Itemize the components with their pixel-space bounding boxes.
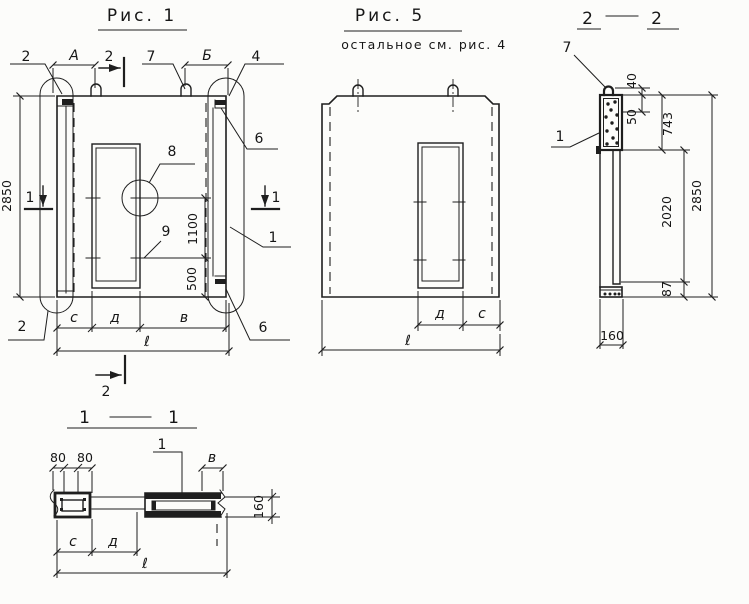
section-1-1: 1 1 1 80 80 в 160 [50,408,280,578]
mark-4: 4 [252,49,261,65]
mark-6-bottom: 6 [259,320,268,336]
mark-1-right: 1 [269,230,278,246]
figure-5-title: Рис. 5 [355,6,425,26]
dim-text-d: д [109,310,120,326]
mark-section-1-right: 1 [272,190,281,206]
jamb-embed-ticks [86,198,146,258]
leader-9 [144,241,161,258]
panel-outline [322,96,499,297]
dim-text-length: ℓ [404,333,411,349]
mark-8: 8 [168,144,177,160]
dim-text-1100: 1100 [185,213,200,245]
figure-1: Рис. 1 [0,6,291,400]
bottom-block-rebar-dots [604,293,621,296]
dim-text-c: с [69,534,77,550]
corner-lines-left [57,106,73,291]
bottom-block [600,287,622,297]
dim-text-v: в [180,310,188,326]
dim-text-87: 87 [659,281,674,297]
mark-7: 7 [147,49,156,65]
mark-section-2-top: 2 [105,49,114,65]
drawing-sheet: Рис. 1 [0,0,749,604]
door-opening-inner [422,147,459,281]
dim-text-80b: 80 [77,450,93,465]
mark-section-1-left: 1 [26,190,35,206]
extension-lines [322,291,500,356]
door-opening-inner [96,148,136,281]
mark-detail-2-bottom: 2 [18,319,27,335]
right-panel-top-band [145,493,221,499]
left-jamb-block [55,493,90,517]
section-1-1-title-a: 1 [79,408,93,428]
extension-lines [13,68,229,356]
opening-reveal-lines [90,497,145,509]
leader-1 [153,452,182,493]
mark-1: 1 [158,437,167,453]
figure-5: Рис. 5 остальное см. рис. 4 д с ℓ [322,6,507,356]
dim-text-d: д [107,534,118,550]
mark-7: 7 [563,40,572,56]
void-end-right [211,501,215,510]
panel-hidden-lines [330,107,492,294]
wall-section-lines [600,150,620,287]
mark-6-top: 6 [255,131,264,147]
dim-text-500: 500 [184,267,199,291]
leader-4 [229,64,284,96]
door-opening-outer [92,144,140,288]
panel-outline [57,96,226,297]
right-panel-bottom-band [145,511,221,517]
dim-text-50: 50 [624,109,639,125]
dim-text-743: 743 [660,112,675,136]
leader-7 [142,64,185,89]
dim-text-2020: 2020 [659,196,674,228]
leader-detail-2-bottom [8,311,48,340]
dim-text-2850: 2850 [689,180,704,212]
section-2-2: 2 2 7 1 4 [551,9,718,349]
top-block-rebar-dots [604,100,618,145]
section-2-2-title-b: 2 [651,9,665,29]
figure-5-subtitle: остальное см. рис. 4 [341,37,506,52]
lifting-loops [91,84,191,96]
dim-text-length: ℓ [141,556,148,572]
extension-lines [53,471,280,578]
leader-8 [149,164,195,183]
right-panel-void [152,501,215,510]
corner-step-top-left [62,99,73,105]
dim-text-length: ℓ [143,334,150,350]
dim-text-c: с [478,306,486,322]
technical-drawing: Рис. 1 [0,0,749,604]
mark-9: 9 [162,224,171,240]
door-opening-outer [418,143,463,288]
figure-1-title: Рис. 1 [107,6,177,26]
section-2-2-title-a: 2 [582,9,596,29]
leader-detail-2-top [10,64,62,94]
section-1-1-title-b: 1 [168,408,182,428]
mark-section-2-bottom: 2 [102,384,111,400]
lifting-loops [353,85,458,96]
dim-text-2850: 2850 [0,180,14,212]
mark-1: 1 [556,129,565,145]
dim-label-A: А [68,48,79,64]
leader-7 [574,55,606,88]
dim-text-80a: 80 [50,450,66,465]
groove-top-right [215,100,226,105]
leader-1-right [230,227,291,247]
dim-label-B: Б [202,48,212,64]
dim-text-40: 40 [624,73,639,89]
left-jamb-void [62,500,83,511]
dim-text-d: д [434,306,445,322]
dim-text-v: в [208,450,216,466]
void-end-left [152,501,156,510]
dim-text-c: с [70,310,78,326]
dim-text-160: 160 [600,328,624,343]
mark-detail-2-top: 2 [22,49,31,65]
groove-bottom-right [215,279,226,284]
dim-text-160: 160 [251,495,266,519]
leader-6-top [221,108,278,149]
